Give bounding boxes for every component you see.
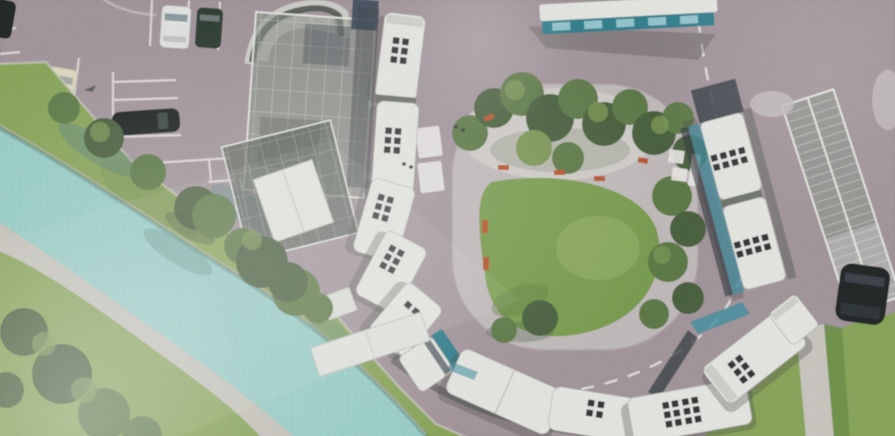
site-plan-rendering	[0, 0, 895, 436]
film-grain	[0, 0, 895, 436]
photo-of-site-plan	[0, 0, 895, 436]
